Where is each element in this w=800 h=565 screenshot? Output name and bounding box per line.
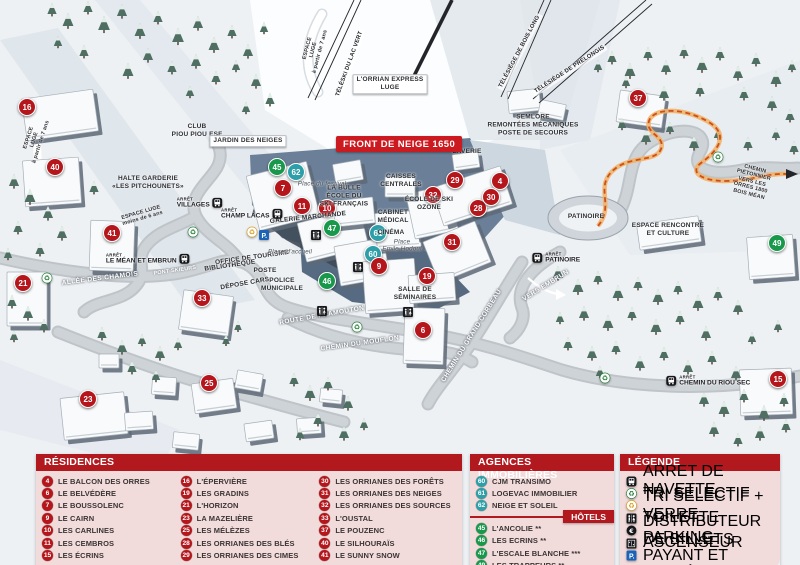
legend-item: 40LE SILHOURAÏS	[319, 537, 458, 549]
legend-item: 4LE BALCON DES ORRES	[42, 475, 181, 487]
legend-number-badge: 46	[476, 535, 487, 546]
legend-item-label: LE BOUSSOLENC	[58, 501, 124, 510]
legend-number-badge: 30	[319, 476, 330, 487]
legend-item-label: LE CAIRN	[58, 514, 94, 523]
legend-item-label: LE POUZENC	[335, 526, 384, 535]
legend-item-label: LE SILHOURAÏS	[335, 539, 394, 548]
legend-item: 7LE BOUSSOLENC	[42, 500, 181, 512]
legend-number-badge: 9	[42, 513, 53, 524]
legend-number-badge: 47	[476, 548, 487, 559]
legende-item-label: PARKING PAYANT ET LIMITÉ	[643, 529, 776, 565]
legend-item: 33L'OUSTAL	[319, 512, 458, 524]
toilet-icon	[626, 513, 637, 524]
legend-item: 25LES MÉLÈZES	[181, 525, 320, 537]
agences-title: AGENCES IMMOBILIÈRES	[470, 454, 614, 471]
legend-item: 45L'ANCOLIE **	[476, 522, 610, 534]
legend-panel-residences: RÉSIDENCES 4LE BALCON DES ORRES6LE BELVÉ…	[36, 454, 462, 565]
legend-item: 37LE POUZENC	[319, 525, 458, 537]
legend-item-label: LES ÉCRINS	[58, 551, 104, 560]
legend-item-label: LES ORRIANES DES NEIGES	[335, 489, 442, 498]
svg-text:€: €	[628, 528, 633, 535]
legend-item-label: L'ANCOLIE **	[492, 524, 541, 533]
legend-number-badge: 40	[319, 538, 330, 549]
legend-item: 16L'ÉPERVIÈRE	[181, 475, 320, 487]
legend-panel-agences: AGENCES IMMOBILIÈRES 60CJM TRANSIMO61LOG…	[470, 454, 614, 565]
legend-number-badge: 31	[319, 488, 330, 499]
legend-item-label: LES ORRIANES DES FORÊTS	[335, 477, 444, 486]
legende-item: P.PARKING PAYANT ET LIMITÉ	[626, 549, 776, 561]
residences-column: 30LES ORRIANES DES FORÊTS31LES ORRIANES …	[319, 475, 458, 562]
legend-item-label: LES ORRIANES DES SOURCES	[335, 501, 450, 510]
legend-item-label: LES CEMBROS	[58, 539, 114, 548]
legend-item-label: LE SUNNY SNOW	[335, 551, 400, 560]
legend-item-label: L'ÉPERVIÈRE	[197, 477, 247, 486]
legend-item: 29LES ORRIANES DES CIMES	[181, 549, 320, 561]
svg-text:♻: ♻	[628, 489, 634, 498]
elevator-icon	[626, 538, 637, 549]
legend-number-badge: 29	[181, 550, 192, 561]
hotels-divider: HÔTELS	[470, 516, 610, 518]
legend-number-badge: 21	[181, 500, 192, 511]
legend-item-label: LES ORRIANES DES BLÉS	[197, 539, 295, 548]
legend-number-badge: 49	[476, 560, 487, 565]
legend-item-label: LE BALCON DES ORRES	[58, 477, 150, 486]
legend-item-label: LE BELVÉDÈRE	[58, 489, 116, 498]
legend-item: 19LES GRADINS	[181, 487, 320, 499]
legend-item: 49LES TRAPPEURS **	[476, 559, 610, 565]
legend-item: 23LA MAZELIÈRE	[181, 512, 320, 524]
bus-icon	[626, 476, 637, 487]
legend-item: 28LES ORRIANES DES BLÉS	[181, 537, 320, 549]
legend-number-badge: 6	[42, 488, 53, 499]
legend-item: 30LES ORRIANES DES FORÊTS	[319, 475, 458, 487]
legend-number-badge: 45	[476, 523, 487, 534]
residences-column: 16L'ÉPERVIÈRE19LES GRADINS21L'HORIZON23L…	[181, 475, 320, 562]
legend-item: 21L'HORIZON	[181, 500, 320, 512]
front-de-neige-banner: FRONT DE NEIGE 1650	[336, 136, 462, 152]
legend-number-badge: 11	[42, 538, 53, 549]
legend-number-badge: 61	[476, 488, 487, 499]
parking-icon: P.	[626, 550, 637, 561]
residences-title: RÉSIDENCES	[36, 454, 462, 471]
legend-item: 60CJM TRANSIMO	[476, 475, 610, 487]
recycle-green-icon: ♻	[626, 488, 637, 499]
legend-number-badge: 62	[476, 500, 487, 511]
recycle-yellow-icon: ♻	[626, 500, 637, 511]
legend-number-badge: 33	[319, 513, 330, 524]
legend-number-badge: 32	[319, 500, 330, 511]
legend-item-label: LA MAZELIÈRE	[197, 514, 253, 523]
legend-item-label: CJM TRANSIMO	[492, 477, 551, 486]
legend-number-badge: 10	[42, 525, 53, 536]
legend-item-label: LOGEVAC IMMOBILIER	[492, 489, 577, 498]
svg-text:♻: ♻	[628, 501, 634, 510]
legend-number-badge: 41	[319, 550, 330, 561]
legend-item-label: LES CARLINES	[58, 526, 114, 535]
legend-item: 41LE SUNNY SNOW	[319, 549, 458, 561]
legend-item: 15LES ÉCRINS	[42, 549, 181, 561]
legend-item-label: NEIGE ET SOLEIL	[492, 501, 558, 510]
legend-item: 10LES CARLINES	[42, 525, 181, 537]
legend-item-label: LES ECRINS **	[492, 536, 546, 545]
legend-item: 11LES CEMBROS	[42, 537, 181, 549]
legend-item: 32LES ORRIANES DES SOURCES	[319, 500, 458, 512]
legend-number-badge: 25	[181, 525, 192, 536]
legend-number-badge: 28	[181, 538, 192, 549]
resort-map: 1640412133232545627111047616094619631282…	[0, 0, 800, 565]
legend-item-label: L'ESCALE BLANCHE ***	[492, 549, 580, 558]
legend-number-badge: 60	[476, 476, 487, 487]
legend-item-label: L'OUSTAL	[335, 514, 372, 523]
legend-number-badge: 15	[42, 550, 53, 561]
hotels-title: HÔTELS	[563, 510, 614, 523]
legend-item-label: L'HORIZON	[197, 501, 239, 510]
legend-number-badge: 23	[181, 513, 192, 524]
legend-item: 6LE BELVÉDÈRE	[42, 487, 181, 499]
legend-item: 61LOGEVAC IMMOBILIER	[476, 487, 610, 499]
legend-item: 31LES ORRIANES DES NEIGES	[319, 487, 458, 499]
euro-icon: €	[626, 525, 637, 536]
legend-item-label: LES ORRIANES DES CIMES	[197, 551, 299, 560]
legend-item-label: LES MÉLÈZES	[197, 526, 250, 535]
legend-number-badge: 19	[181, 488, 192, 499]
legend-number-badge: 4	[42, 476, 53, 487]
legend-item: 46LES ECRINS **	[476, 535, 610, 547]
legend-item: 47L'ESCALE BLANCHE ***	[476, 547, 610, 559]
residences-column: 4LE BALCON DES ORRES6LE BELVÉDÈRE7LE BOU…	[42, 475, 181, 562]
legend-number-badge: 16	[181, 476, 192, 487]
legend-item: 9LE CAIRN	[42, 512, 181, 524]
legend-item-label: LES GRADINS	[197, 489, 249, 498]
legend-number-badge: 7	[42, 500, 53, 511]
legend-panel-legende: LÉGENDE ARRET DE NAVETTE♻TRI SELECTIF♻TR…	[620, 454, 780, 565]
legend-item-label: LES TRAPPEURS **	[492, 561, 564, 565]
legend-number-badge: 37	[319, 525, 330, 536]
svg-text:P.: P.	[629, 553, 635, 560]
